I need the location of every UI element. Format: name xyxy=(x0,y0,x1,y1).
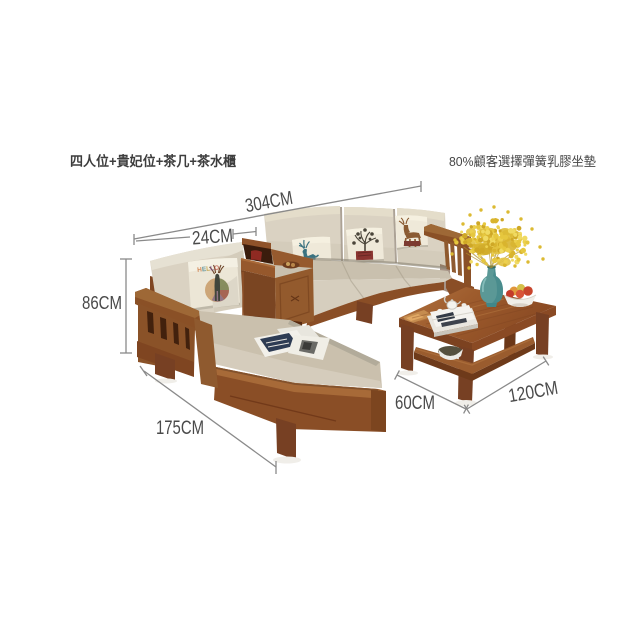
svg-text:175CM: 175CM xyxy=(156,418,204,439)
svg-text:24CM: 24CM xyxy=(191,226,233,250)
svg-text:86CM: 86CM xyxy=(82,293,122,313)
svg-text:80%顧客選擇彈簧乳膠坐墊: 80%顧客選擇彈簧乳膠坐墊 xyxy=(449,154,596,169)
svg-text:60CM: 60CM xyxy=(395,393,435,414)
svg-text:四人位+貴妃位+茶几+茶水櫃: 四人位+貴妃位+茶几+茶水櫃 xyxy=(70,153,236,169)
